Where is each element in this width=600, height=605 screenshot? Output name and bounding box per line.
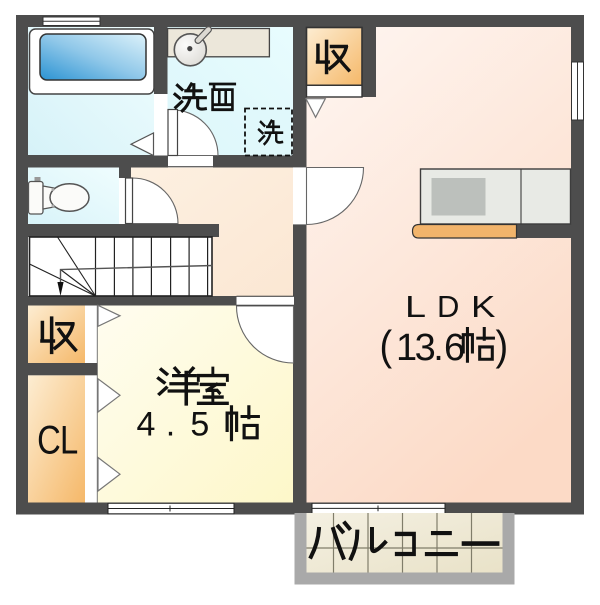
svg-text:(: ( <box>380 324 393 370</box>
svg-text:13.: 13. <box>396 327 441 369</box>
svg-text:): ) <box>496 324 509 370</box>
svg-text:4: 4 <box>137 405 156 443</box>
svg-text:K: K <box>471 290 496 325</box>
svg-text:L: L <box>405 290 426 324</box>
svg-text:D: D <box>437 289 459 324</box>
svg-text:CL: CL <box>37 417 78 462</box>
svg-text:.: . <box>166 405 175 443</box>
svg-text:5: 5 <box>190 405 209 443</box>
